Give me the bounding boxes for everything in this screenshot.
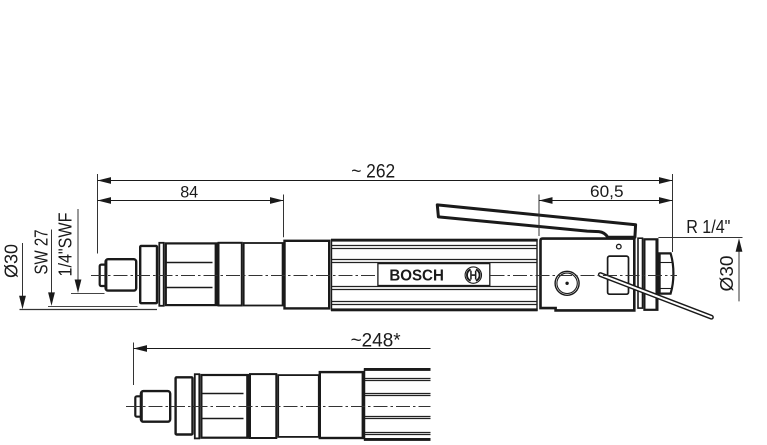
svg-text:SW 27: SW 27 (31, 230, 52, 275)
svg-text:84: 84 (180, 184, 198, 202)
svg-text:~ 262: ~ 262 (351, 161, 395, 182)
svg-text:1/4"SWF: 1/4"SWF (55, 213, 76, 277)
svg-text:~248*: ~248* (351, 330, 402, 351)
svg-text:R 1/4": R 1/4" (686, 216, 730, 237)
svg-text:Ø30: Ø30 (1, 244, 22, 278)
svg-text:BOSCH: BOSCH (389, 267, 444, 284)
svg-text:Ø30: Ø30 (716, 256, 737, 292)
svg-text:60,5: 60,5 (590, 183, 624, 201)
